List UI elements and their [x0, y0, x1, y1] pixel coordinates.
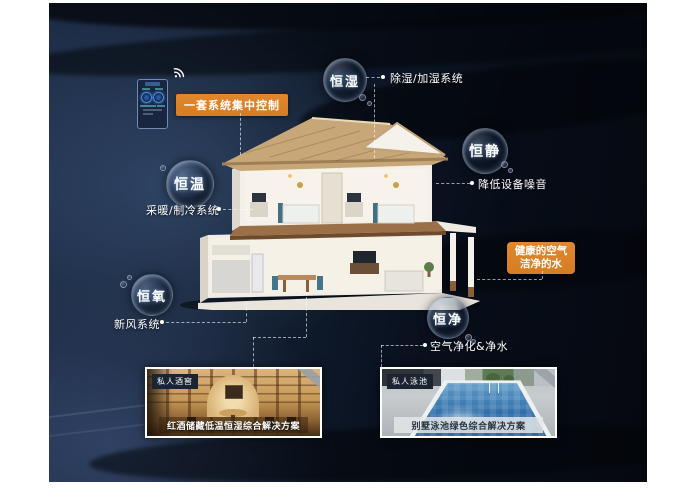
connector-dot: [470, 181, 474, 185]
note-air-water-purification: 空气净化&净水: [430, 338, 508, 354]
note-humidity-system: 除湿/加湿系统: [390, 70, 463, 86]
wine-badge: 私人酒窖: [152, 374, 198, 389]
bubble-accent: [127, 275, 132, 280]
connector-temperature: [223, 209, 253, 210]
phone-dials: [140, 92, 165, 103]
bubble-accent: [120, 281, 127, 288]
phone-header: [145, 82, 160, 86]
connector-wine-h: [253, 337, 306, 338]
pool-ladder: [489, 383, 499, 393]
pool-panel[interactable]: 私人泳池 别墅泳池绿色综合解决方案: [380, 367, 557, 438]
connector-wine-v2: [253, 337, 254, 367]
central-control-callout: 一套系统集中控制: [176, 94, 288, 116]
healthy-air-water-callout: 健康的空气 洁净的水: [507, 242, 575, 274]
connector-oxygen-v: [246, 302, 247, 322]
bubble-accent: [359, 94, 366, 101]
bubble-accent: [508, 168, 513, 173]
smart-home-controller-phone: [137, 79, 168, 129]
bubble-constant-temperature: 恒温: [166, 160, 214, 208]
connector-healthy-v: [542, 271, 543, 279]
connector-healthy-h: [477, 279, 542, 280]
bubble-constant-oxygen: 恒氧: [131, 274, 173, 316]
bubble-constant-quiet: 恒静: [462, 128, 508, 174]
bubble-accent: [367, 101, 372, 106]
connector-wine-v1: [306, 292, 307, 337]
connector-dot: [217, 207, 221, 211]
connector-humidity: [366, 77, 380, 78]
note-fresh-air-system: 新风系统: [114, 316, 160, 332]
healthy-line1: 健康的空气: [507, 245, 575, 258]
wifi-icon: [168, 63, 186, 79]
note-noise-reduction: 降低设备噪音: [478, 176, 547, 192]
bubble-constant-purity: 恒净: [427, 297, 469, 339]
bubble-accent: [501, 161, 508, 168]
connector-humidity-v: [374, 84, 375, 158]
pool-badge: 私人泳池: [387, 374, 433, 389]
wine-cellar-panel[interactable]: 私人酒窖 红酒储藏低温恒湿综合解决方案: [145, 367, 322, 438]
connector-oxygen: [166, 322, 246, 323]
healthy-line2: 洁净的水: [507, 258, 575, 271]
phone-divider: [143, 109, 162, 111]
bubble-accent: [160, 165, 166, 171]
connector-control: [240, 113, 241, 155]
connector-pool-panel: [381, 345, 382, 367]
infographic-stage: 一套系统集中控制 恒湿 除湿/加湿系统 恒静 降低设备噪音 恒温 采暖/制冷系统…: [0, 0, 700, 497]
connector-dot: [423, 343, 427, 347]
dial-icon: [141, 92, 152, 103]
pool-caption: 别墅泳池绿色综合解决方案: [394, 417, 543, 433]
connector-dot: [160, 320, 164, 324]
connector-quiet: [436, 183, 470, 184]
connector-dot: [381, 75, 385, 79]
dial-icon: [153, 92, 164, 103]
note-hvac-system: 采暖/制冷系统: [146, 202, 219, 218]
connector-purity: [381, 345, 423, 346]
wine-caption: 红酒储藏低温恒湿综合解决方案: [159, 417, 308, 433]
